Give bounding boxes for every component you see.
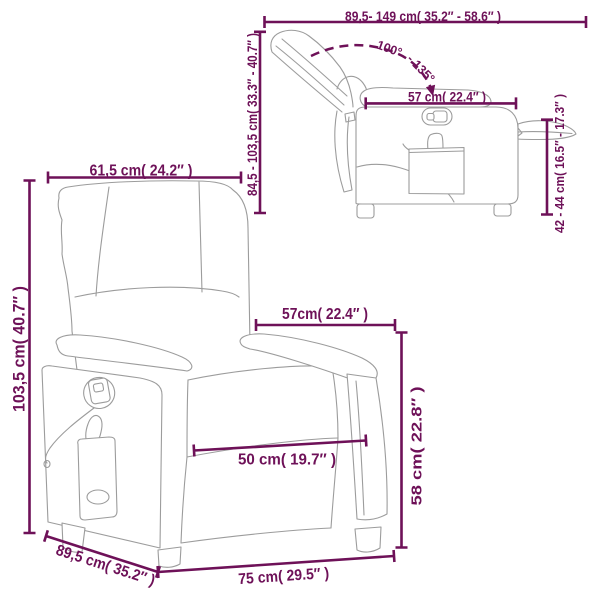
svg-text:57cm( 22.4″ ): 57cm( 22.4″ ): [282, 306, 368, 323]
svg-text:50 cm( 19.7″ ): 50 cm( 19.7″ ): [238, 452, 336, 469]
svg-text:84,5 - 103,5 cm( 33.3″ - 40.7: 84,5 - 103,5 cm( 33.3″ - 40.7″ ): [245, 33, 260, 196]
svg-text:103,5 cm( 40.7″ ): 103,5 cm( 40.7″ ): [11, 286, 29, 412]
svg-text:89,5- 149 cm( 35.2″ - 58.6″ ): 89,5- 149 cm( 35.2″ - 58.6″ ): [345, 9, 501, 24]
svg-text:58 cm( 22.8″ ): 58 cm( 22.8″ ): [409, 387, 426, 506]
svg-text:61,5 cm( 24.2″ ): 61,5 cm( 24.2″ ): [90, 163, 193, 180]
svg-text:42 - 44 cm( 16.5″ - 17.3″ ): 42 - 44 cm( 16.5″ - 17.3″ ): [552, 94, 567, 233]
svg-text:57 cm( 22.4″ ): 57 cm( 22.4″ ): [408, 90, 486, 105]
